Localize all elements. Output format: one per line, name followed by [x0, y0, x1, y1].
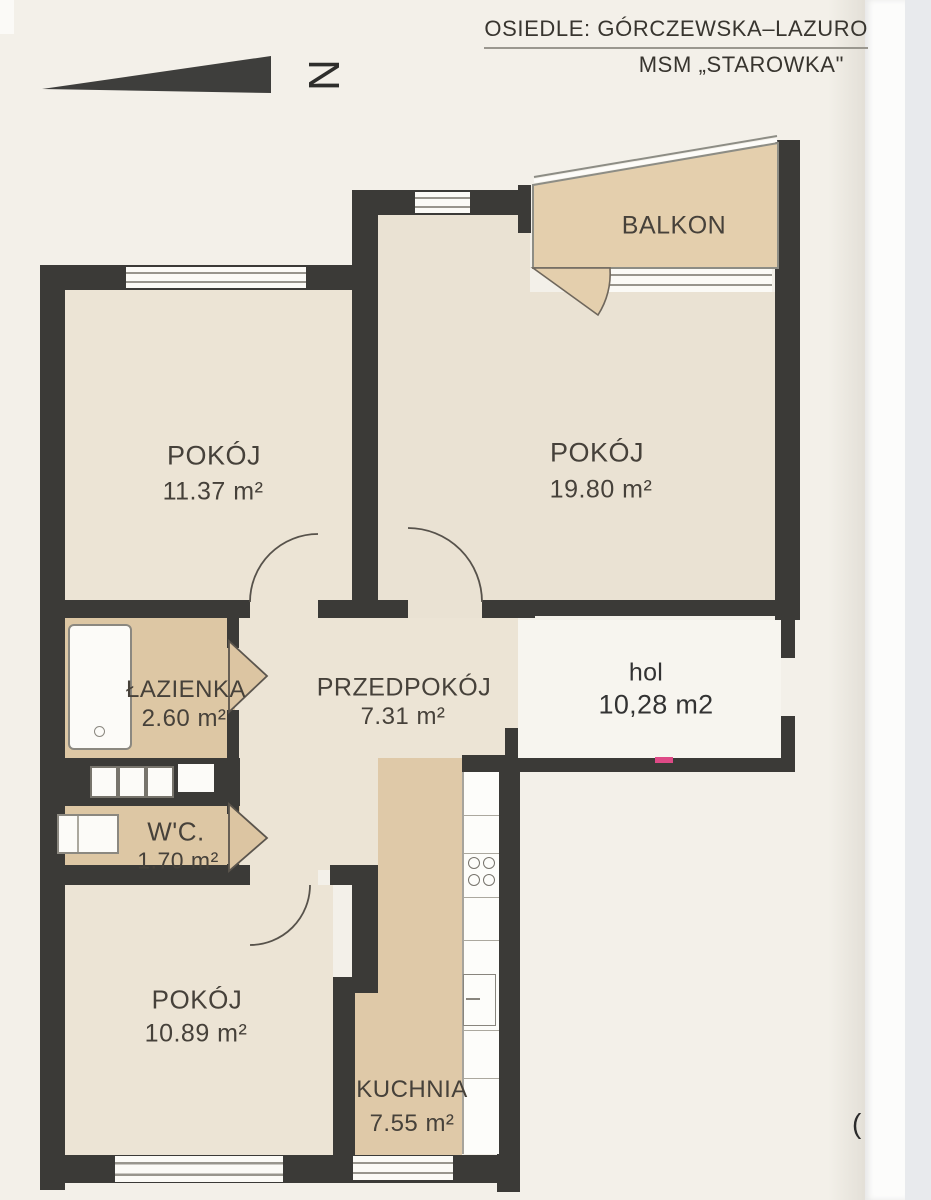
- hol-area: 10,28 m2: [599, 690, 714, 721]
- kuchnia-area: 7.55 m²: [370, 1110, 455, 1138]
- balcony-door-leaf: [533, 268, 610, 315]
- pokoj3-area: 10.89 m²: [145, 1020, 248, 1049]
- bathtub: [68, 624, 132, 750]
- wc-label: W'C.: [147, 817, 205, 848]
- kitchen-sink-tap: [466, 998, 480, 1000]
- shelf-square-2: [118, 766, 146, 798]
- pokoj2-area: 19.80 m²: [550, 476, 653, 505]
- lazienka-label: ŁAZIENKA: [126, 676, 246, 704]
- shelf-square-1: [90, 766, 118, 798]
- title-block: OSIEDLE: GÓRCZEWSKA–LAZURO MSM „STAROWKA…: [484, 16, 868, 78]
- pink-mark: [655, 757, 673, 763]
- stove-burner-1: [468, 857, 480, 869]
- page-mark: (: [852, 1108, 861, 1140]
- hol-label: hol: [629, 659, 663, 688]
- pokoj2-label: POKÓJ: [550, 438, 644, 469]
- pokoj1-door-arc: [250, 534, 318, 602]
- stove-burner-2: [483, 857, 495, 869]
- counter-line-5: [464, 1030, 499, 1031]
- stove-burner-4: [483, 874, 495, 886]
- wc-door-leaf: [229, 804, 267, 871]
- balkon-label: BALKON: [622, 212, 726, 241]
- kitchen-sink: [463, 974, 496, 1026]
- pokoj1-label: POKÓJ: [167, 441, 261, 472]
- counter-line-1: [464, 815, 499, 816]
- counter-line-2: [464, 853, 499, 854]
- shelf-square-3: [146, 766, 174, 798]
- title-line1: OSIEDLE: GÓRCZEWSKA–LAZURO: [484, 16, 868, 49]
- wc-washbasin: [57, 814, 119, 854]
- bathtub-drain: [94, 726, 105, 737]
- wc-area: 1.70 m²: [137, 848, 218, 875]
- shelf-cabinet: [178, 764, 214, 792]
- przedpokoj-label: PRZEDPOKÓJ: [317, 674, 491, 703]
- north-label: N: [300, 52, 346, 98]
- lazienka-area: 2.60 m²: [142, 705, 227, 733]
- counter-line-3: [464, 897, 499, 898]
- title-line2: MSM „STAROWKA": [484, 52, 868, 78]
- pokoj3-label: POKÓJ: [152, 985, 243, 1016]
- floor-plan-page: OSIEDLE: GÓRCZEWSKA–LAZURO MSM „STAROWKA…: [0, 0, 931, 1200]
- pokoj3-door-arc: [250, 885, 310, 945]
- przedpokoj-area: 7.31 m²: [361, 703, 446, 731]
- counter-line-4: [464, 940, 499, 941]
- counter-line-6: [464, 1078, 499, 1079]
- pokoj1-area: 11.37 m²: [163, 478, 264, 507]
- north-arrow-icon: [42, 56, 271, 93]
- kuchnia-label: KUCHNIA: [356, 1076, 468, 1104]
- pokoj2-door-arc: [408, 528, 482, 602]
- wc-washbasin-divider: [77, 816, 79, 852]
- stove-burner-3: [468, 874, 480, 886]
